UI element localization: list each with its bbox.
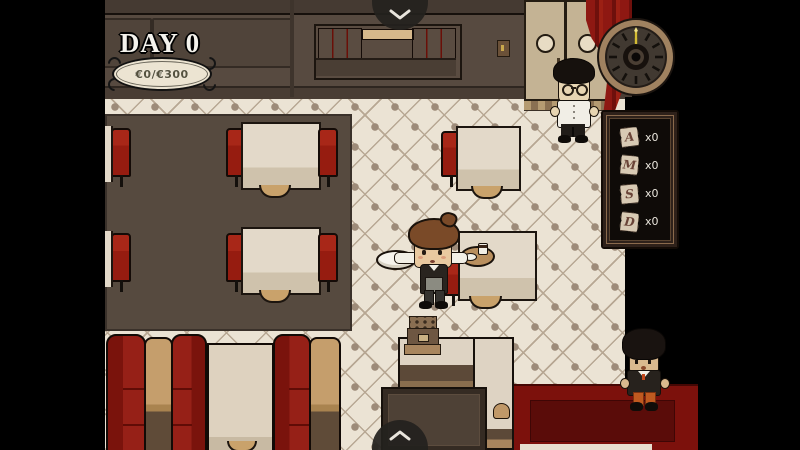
wall-divider: [290, 0, 294, 97]
money-value: €0/€300: [135, 68, 188, 81]
carpet-floor-edge: [520, 444, 652, 450]
table-edge: [105, 231, 113, 287]
child-shoe: [630, 402, 643, 411]
menu-board-row: D x0: [620, 212, 670, 232]
booth-bench-wood: [309, 337, 341, 450]
red-chair: [111, 128, 131, 177]
booth-bench-red: [106, 334, 146, 450]
ticket-count: x0: [645, 187, 659, 200]
counter-front: [398, 365, 479, 390]
ticket-icon-meal: M: [619, 155, 640, 177]
door-porthole-icon: [536, 34, 555, 53]
staff-character[interactable]: [548, 58, 600, 150]
blush: [441, 256, 446, 259]
money-banner: €0/€300: [112, 57, 212, 91]
ticket-count: x0: [645, 215, 659, 228]
booth-base: [316, 58, 456, 76]
booth-seat-red: [318, 28, 362, 60]
customer-child-character[interactable]: [618, 328, 670, 414]
staff-hand: [589, 106, 599, 117]
child-hair: [622, 328, 666, 360]
booth-bench-red: [171, 334, 207, 450]
red-chair: [111, 233, 131, 282]
child-eye: [648, 360, 651, 364]
wooden-chair: [227, 441, 257, 450]
child-hand: [620, 378, 630, 389]
waiter-eye: [422, 250, 426, 255]
ticket-icon-sweet: S: [619, 183, 640, 205]
void-bottom-right: [698, 384, 800, 450]
blush: [418, 256, 423, 259]
ticket-icon-appetizer: A: [619, 126, 640, 148]
ticket-count: x0: [645, 131, 659, 144]
child-tie: [642, 374, 645, 380]
wall-clock: [596, 17, 676, 97]
glasses-bridge: [571, 87, 576, 89]
dining-table: [241, 122, 321, 190]
red-chair: [318, 233, 338, 282]
void-top-right: [672, 0, 800, 97]
waiter-eye: [438, 250, 442, 255]
staff-hair: [553, 58, 595, 84]
booth-bench-red: [273, 334, 311, 450]
ticket-count: x0: [645, 159, 659, 172]
ticket-icon-drink: D: [619, 211, 640, 233]
waiter-character[interactable]: [376, 212, 488, 316]
staff-hand: [550, 106, 560, 117]
booth-tabletop: [362, 29, 414, 40]
glasses-icon: [576, 84, 588, 96]
staff-shoe: [558, 135, 571, 143]
counter-bell[interactable]: [493, 403, 510, 419]
menu-board: A x0 M x0 S x0 D x0: [601, 110, 679, 249]
table-edge: [105, 126, 113, 182]
light-switch[interactable]: [497, 40, 510, 57]
menu-board-panel: A x0 M x0 S x0 D x0: [609, 118, 671, 241]
booth-table: [207, 343, 274, 450]
chevron-up-icon: [388, 429, 412, 441]
child-shoe: [645, 402, 658, 411]
staff-shoe: [575, 135, 588, 143]
menu-board-row: S x0: [620, 184, 670, 204]
booth-bench-wood: [144, 337, 173, 450]
cash-register[interactable]: [404, 316, 440, 362]
child-hand: [660, 378, 670, 389]
letterbox-left: [0, 0, 105, 450]
waiter-mouth: [430, 260, 435, 263]
day-counter: DAY 0: [105, 28, 215, 59]
waiter-shoe: [419, 301, 432, 309]
wall-booth: [314, 24, 462, 80]
dining-table: [241, 227, 321, 295]
glasses-icon: [562, 84, 574, 96]
chevron-down-icon: [388, 9, 412, 21]
menu-board-row: A x0: [620, 127, 670, 147]
game-screen: A x0 M x0 S x0 D x0: [0, 0, 800, 450]
child-eye: [635, 360, 638, 364]
menu-board-row: M x0: [620, 155, 670, 175]
booth-seat-red: [412, 28, 456, 60]
red-chair: [318, 128, 338, 177]
waiter-shoe: [435, 301, 448, 309]
dining-table: [456, 126, 521, 191]
